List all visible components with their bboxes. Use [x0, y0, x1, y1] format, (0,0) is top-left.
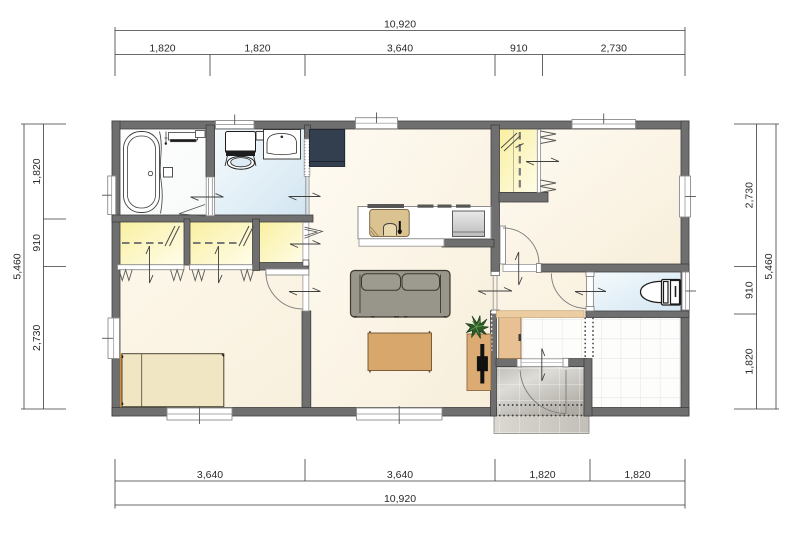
svg-text:5,460: 5,460 [12, 253, 24, 279]
svg-text:5,460: 5,460 [763, 253, 775, 279]
svg-text:1,820: 1,820 [149, 43, 175, 55]
svg-text:1,820: 1,820 [31, 158, 43, 184]
svg-text:2,730: 2,730 [744, 182, 756, 208]
svg-text:910: 910 [31, 234, 43, 252]
svg-text:1,820: 1,820 [244, 43, 270, 55]
svg-text:910: 910 [744, 281, 756, 299]
svg-text:3,640: 3,640 [197, 469, 223, 481]
svg-text:910: 910 [510, 43, 528, 55]
svg-text:1,820: 1,820 [744, 348, 756, 374]
svg-text:2,730: 2,730 [31, 325, 43, 351]
svg-text:3,640: 3,640 [387, 43, 413, 55]
svg-text:10,920: 10,920 [384, 19, 416, 31]
svg-text:2,730: 2,730 [601, 43, 627, 55]
svg-text:1,820: 1,820 [529, 469, 555, 481]
svg-text:1,820: 1,820 [624, 469, 650, 481]
svg-text:3,640: 3,640 [387, 469, 413, 481]
svg-text:10,920: 10,920 [384, 493, 416, 505]
